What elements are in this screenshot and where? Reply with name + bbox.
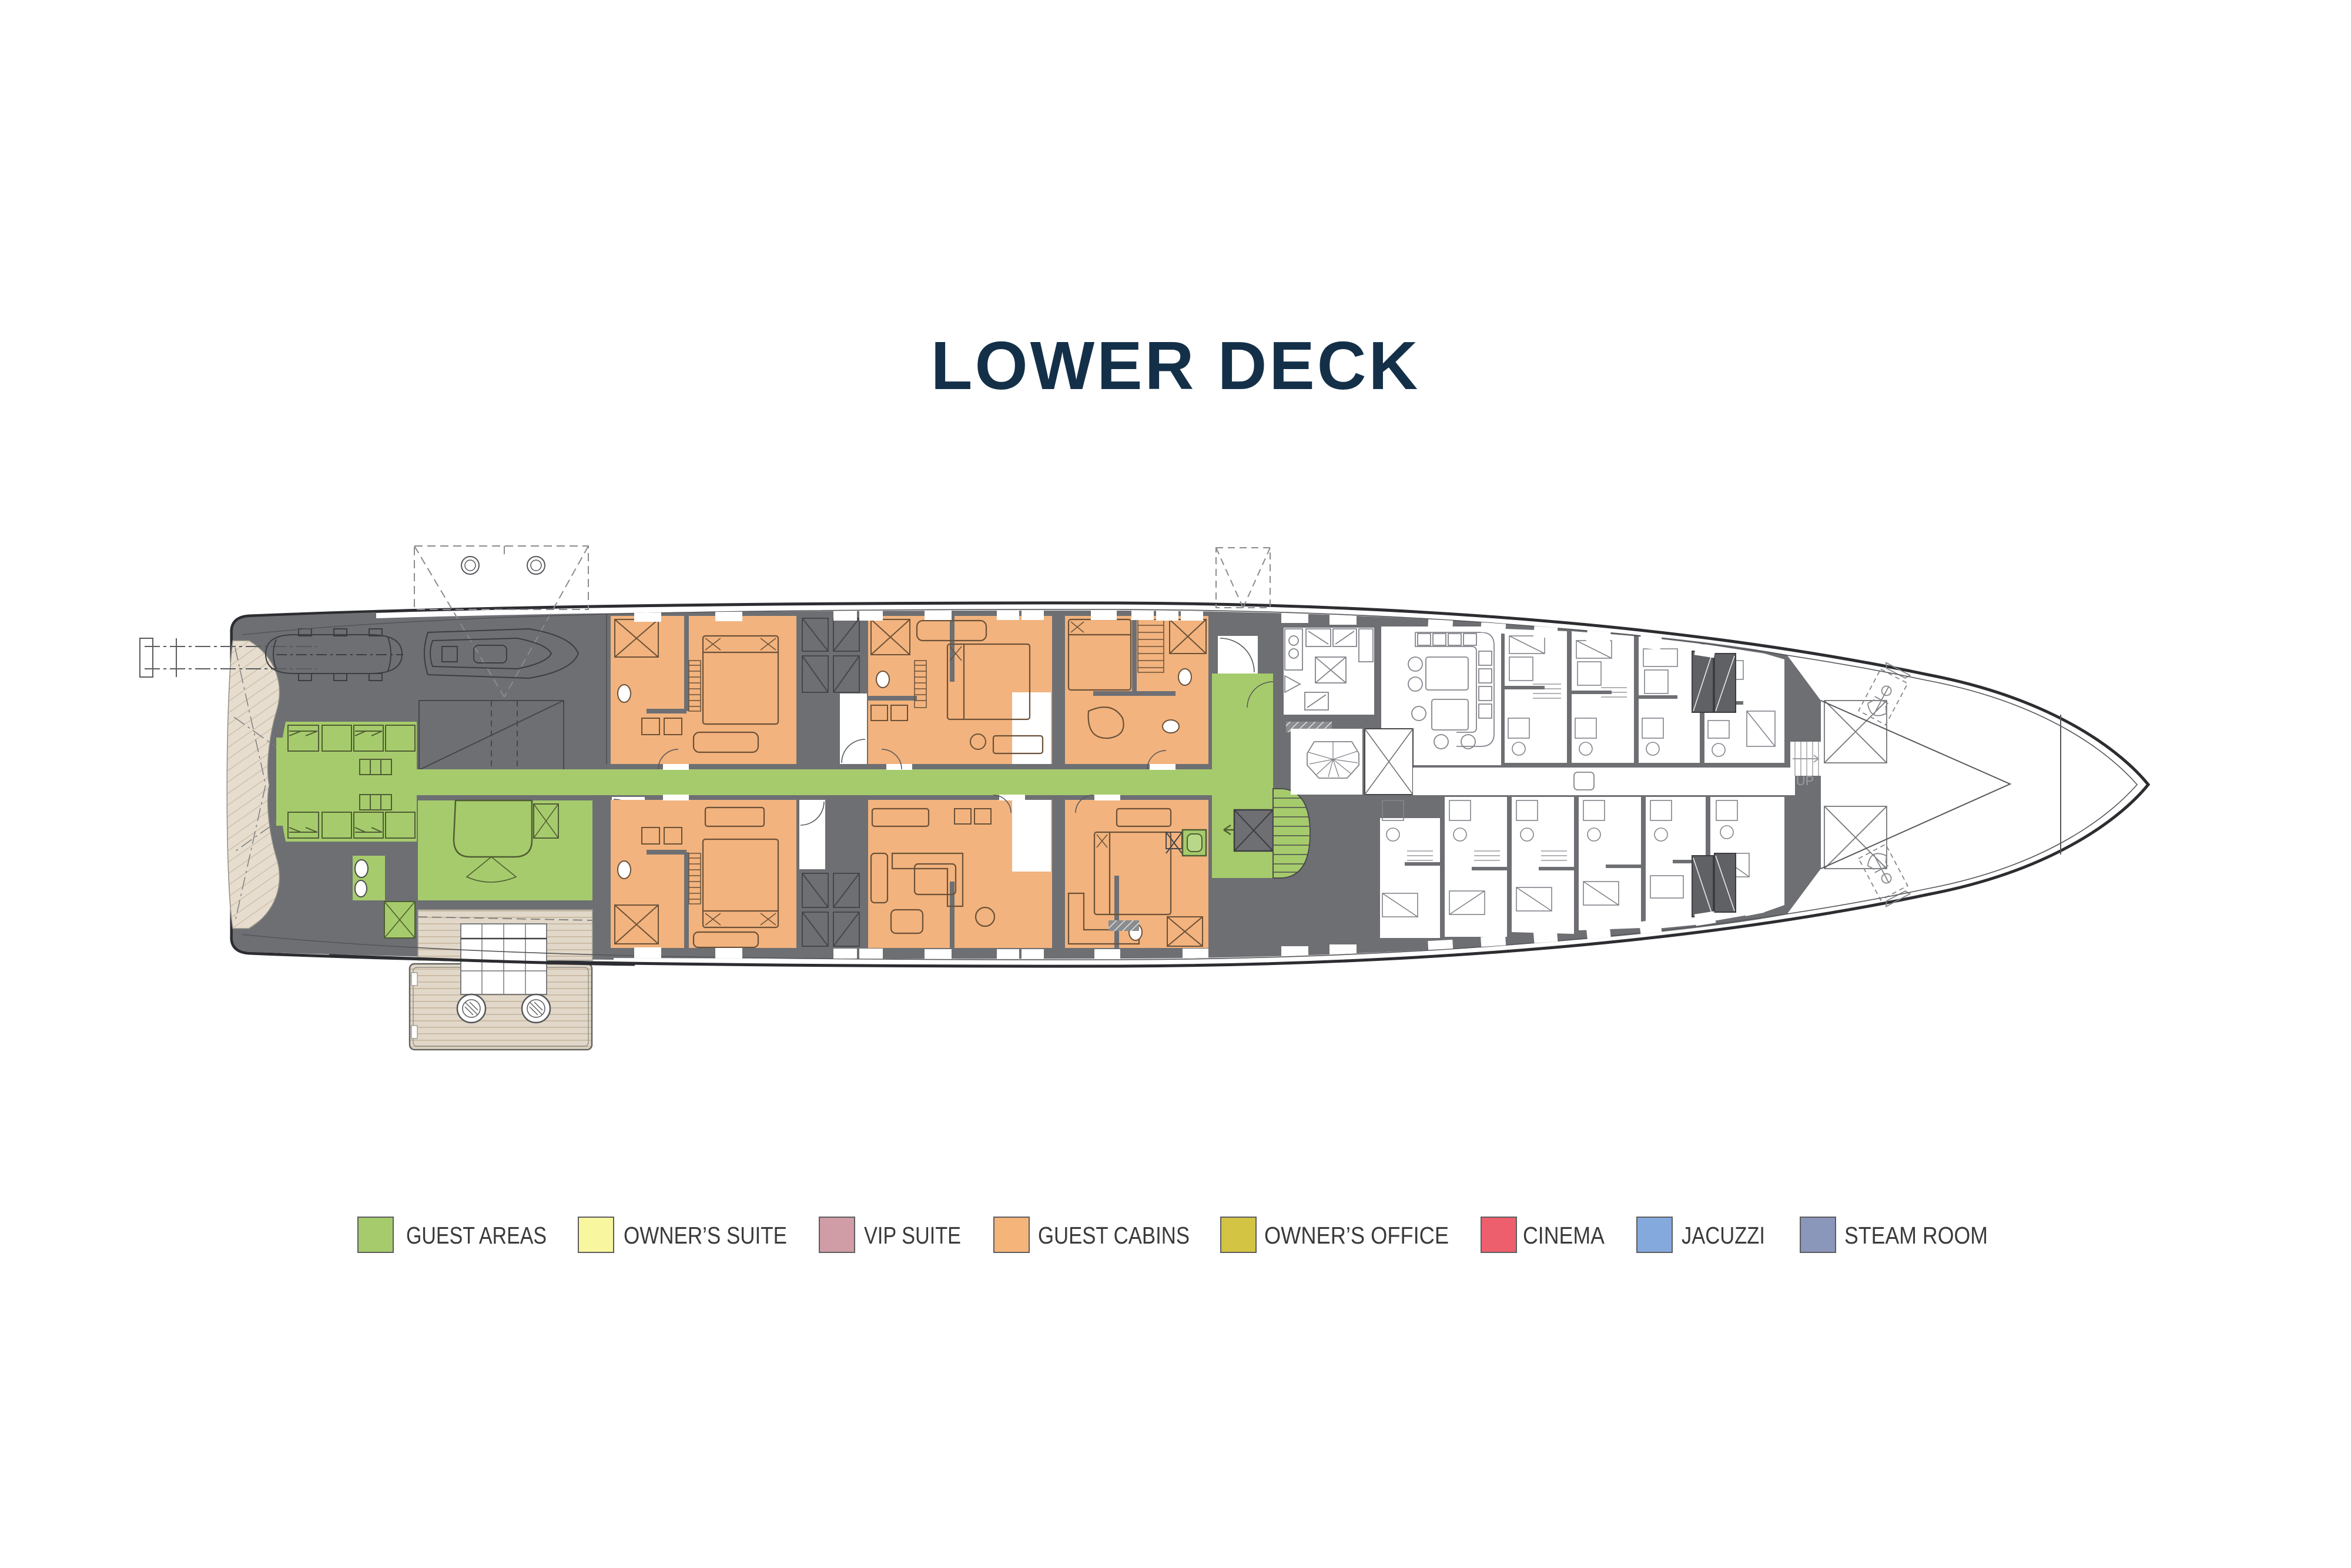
svg-text:JACUZZI: JACUZZI xyxy=(1682,1222,1765,1249)
svg-text:UP: UP xyxy=(1796,773,1814,788)
svg-text:OWNER’S SUITE: OWNER’S SUITE xyxy=(624,1222,787,1249)
svg-text:VIP SUITE: VIP SUITE xyxy=(864,1222,961,1249)
svg-text:GUEST AREAS: GUEST AREAS xyxy=(406,1222,547,1249)
svg-text:OWNER’S OFFICE: OWNER’S OFFICE xyxy=(1264,1222,1449,1249)
svg-text:LOWER DECK: LOWER DECK xyxy=(931,327,1421,404)
svg-text:STEAM ROOM: STEAM ROOM xyxy=(1844,1222,1988,1249)
svg-text:CINEMA: CINEMA xyxy=(1523,1222,1605,1249)
svg-text:GUEST CABINS: GUEST CABINS xyxy=(1038,1222,1190,1249)
